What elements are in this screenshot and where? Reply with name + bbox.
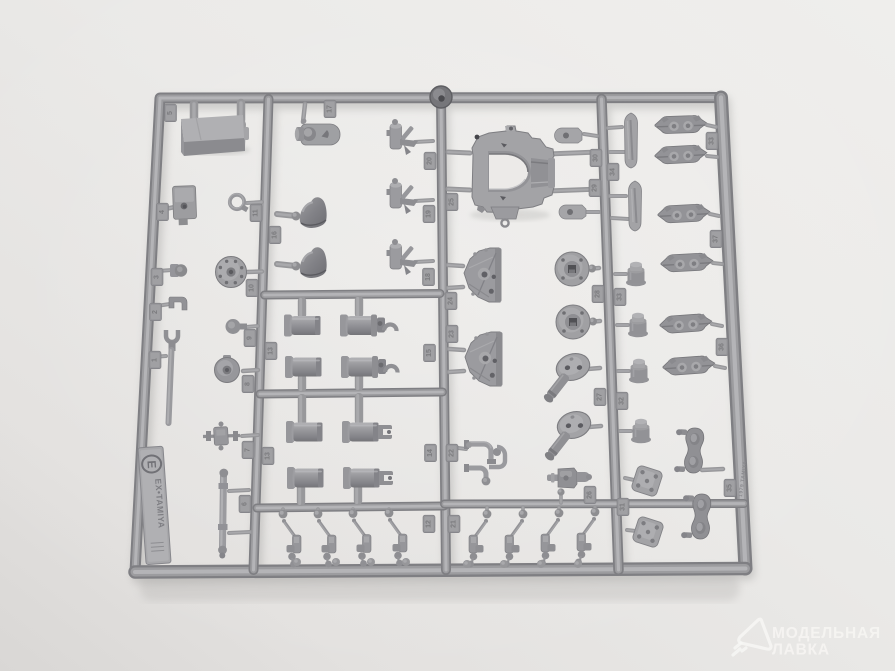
svg-text:17: 17 [327, 105, 334, 113]
svg-text:14: 14 [427, 449, 434, 457]
svg-text:2: 2 [152, 310, 159, 314]
svg-text:5: 5 [167, 111, 174, 115]
svg-text:31: 31 [620, 503, 627, 511]
svg-text:20: 20 [427, 157, 434, 165]
svg-text:27: 27 [597, 393, 604, 401]
svg-text:13: 13 [268, 347, 275, 355]
svg-text:30: 30 [593, 154, 600, 162]
svg-text:25: 25 [449, 198, 456, 206]
svg-text:22: 22 [449, 449, 456, 457]
svg-text:15: 15 [426, 349, 433, 357]
svg-text:21: 21 [451, 520, 458, 528]
svg-text:19: 19 [426, 210, 433, 218]
svg-text:33: 33 [617, 293, 624, 301]
svg-text:33: 33 [709, 137, 716, 145]
svg-text:26: 26 [587, 491, 594, 499]
svg-text:13: 13 [265, 452, 272, 460]
svg-text:32: 32 [619, 397, 626, 405]
svg-text:29: 29 [592, 184, 599, 192]
svg-text:18: 18 [425, 273, 432, 281]
svg-text:11: 11 [253, 209, 260, 217]
svg-text:7: 7 [245, 448, 252, 452]
svg-text:24: 24 [448, 297, 455, 305]
svg-text:10: 10 [249, 284, 256, 292]
svg-text:36: 36 [719, 343, 726, 351]
svg-text:34: 34 [610, 168, 617, 176]
svg-text:1: 1 [152, 358, 159, 362]
svg-text:9: 9 [247, 336, 254, 340]
svg-text:4: 4 [159, 210, 166, 214]
svg-text:23: 23 [449, 330, 456, 338]
svg-text:28: 28 [595, 290, 602, 298]
svg-text:E: E [144, 460, 159, 469]
svg-text:16: 16 [272, 231, 279, 239]
svg-text:ЛАВКА: ЛАВКА [772, 642, 830, 659]
svg-text:12: 12 [426, 520, 433, 528]
svg-text:8: 8 [245, 382, 252, 386]
svg-text:6: 6 [242, 502, 249, 506]
svg-text:35: 35 [727, 484, 734, 492]
svg-text:37: 37 [713, 235, 720, 243]
svg-text:3: 3 [154, 275, 161, 279]
svg-text:МОДЕЛЬНАЯ: МОДЕЛЬНАЯ [772, 625, 881, 642]
